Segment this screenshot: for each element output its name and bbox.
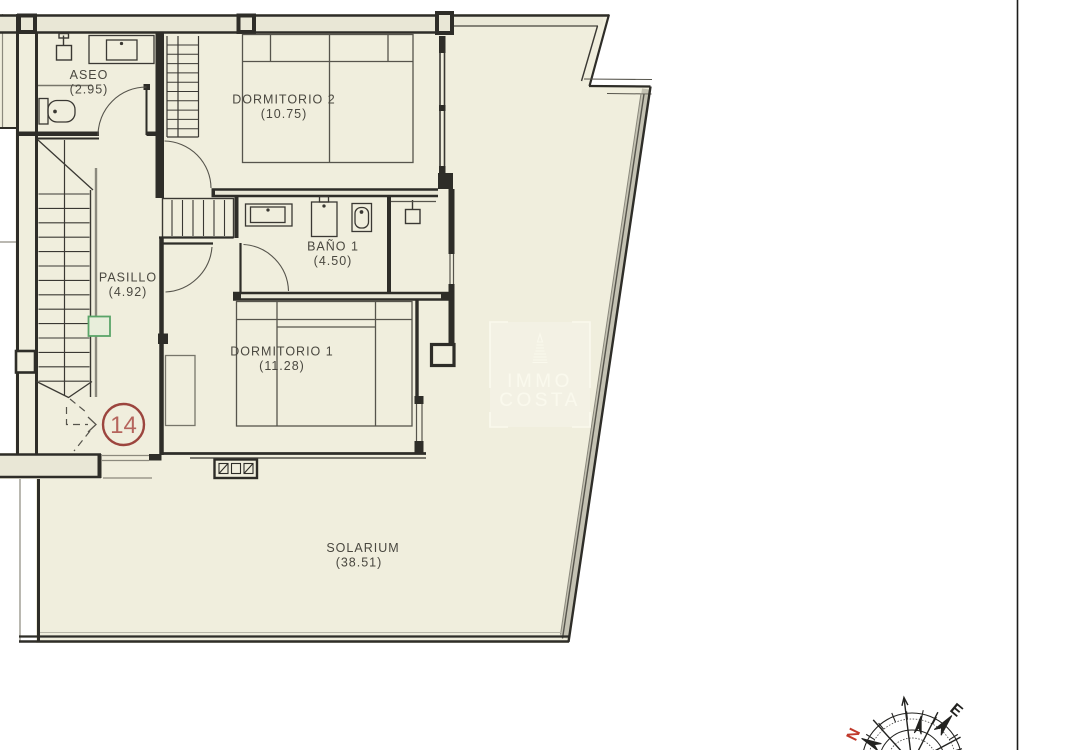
svg-text:(38.51): (38.51) [336, 556, 383, 570]
svg-text:BAÑO 1: BAÑO 1 [307, 240, 359, 254]
svg-text:DORMITORIO 1: DORMITORIO 1 [230, 345, 333, 359]
svg-text:ASEO: ASEO [70, 68, 109, 82]
svg-text:(10.75): (10.75) [261, 107, 308, 121]
svg-text:(4.92): (4.92) [109, 285, 148, 299]
svg-text:COSTA: COSTA [499, 390, 581, 411]
svg-text:IMMO: IMMO [507, 371, 573, 392]
svg-text:14: 14 [110, 412, 137, 439]
svg-text:PASILLO: PASILLO [99, 271, 157, 285]
svg-text:(4.50): (4.50) [314, 254, 353, 268]
svg-text:DORMITORIO 2: DORMITORIO 2 [232, 93, 335, 107]
svg-text:SOLARIUM: SOLARIUM [326, 541, 399, 555]
svg-text:(11.28): (11.28) [259, 359, 305, 373]
svg-text:(2.95): (2.95) [70, 83, 109, 97]
